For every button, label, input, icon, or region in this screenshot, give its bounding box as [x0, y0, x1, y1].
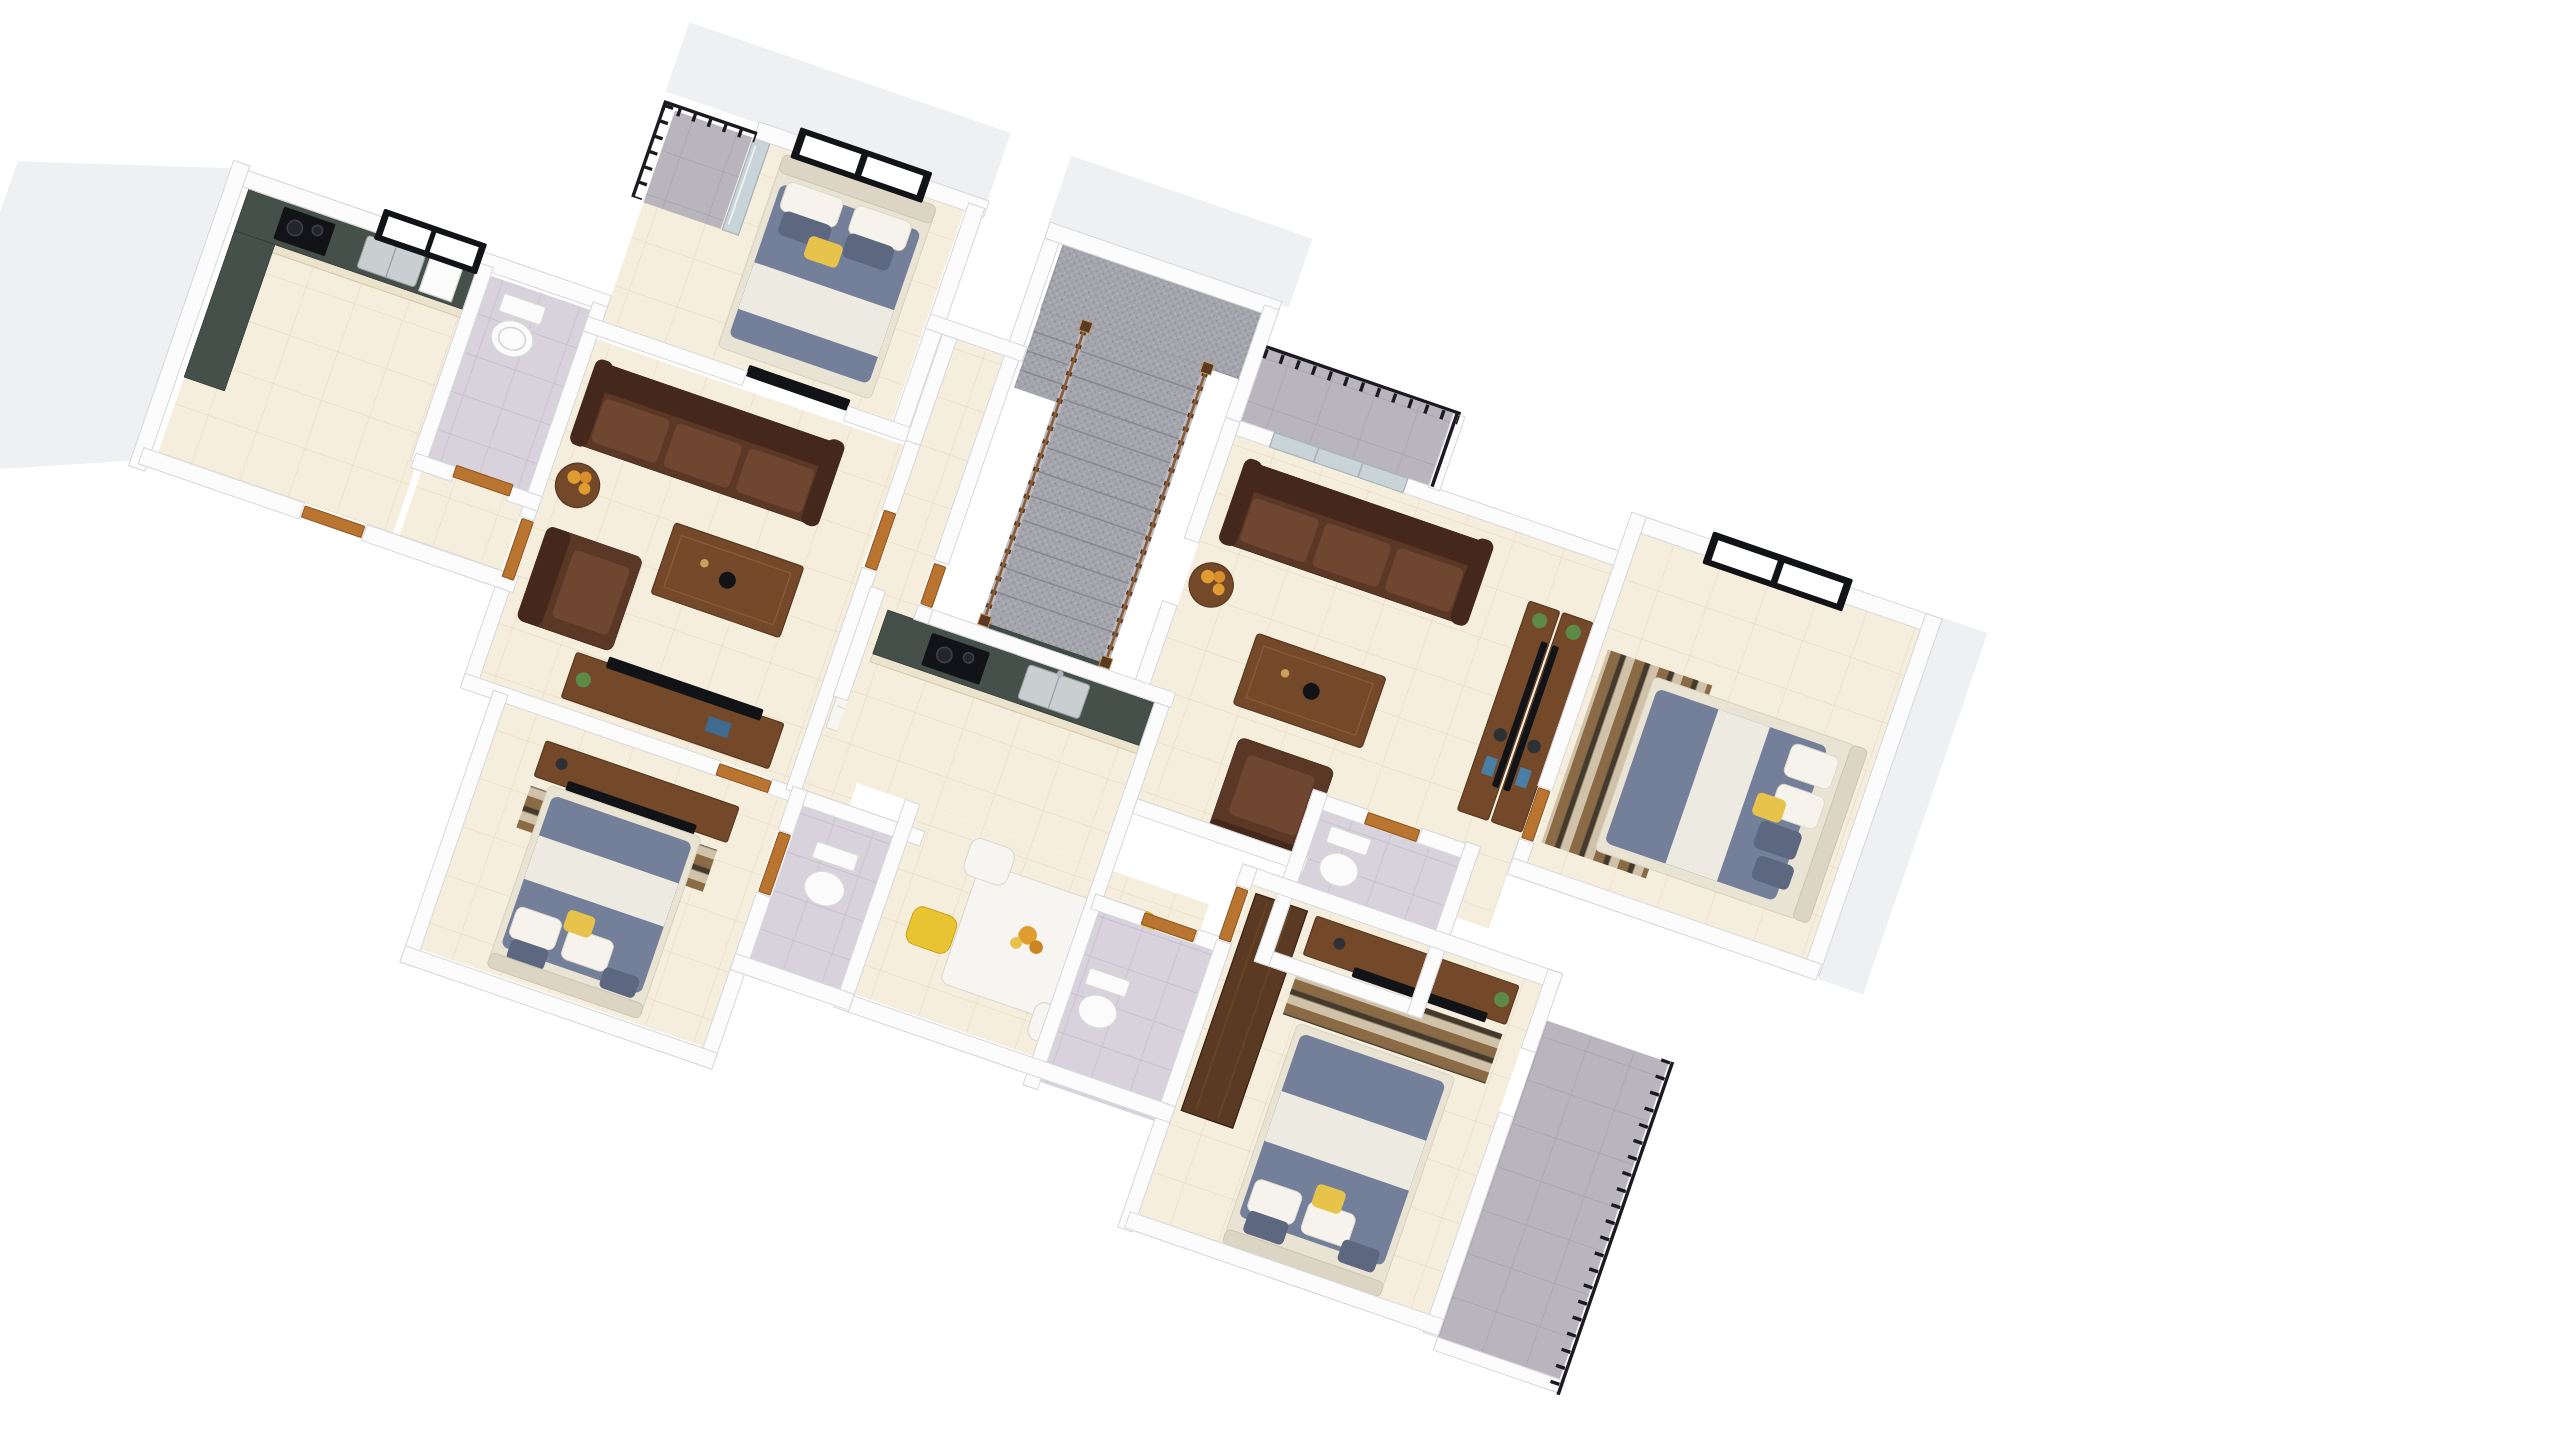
floorplan-canvas — [0, 0, 2560, 1440]
